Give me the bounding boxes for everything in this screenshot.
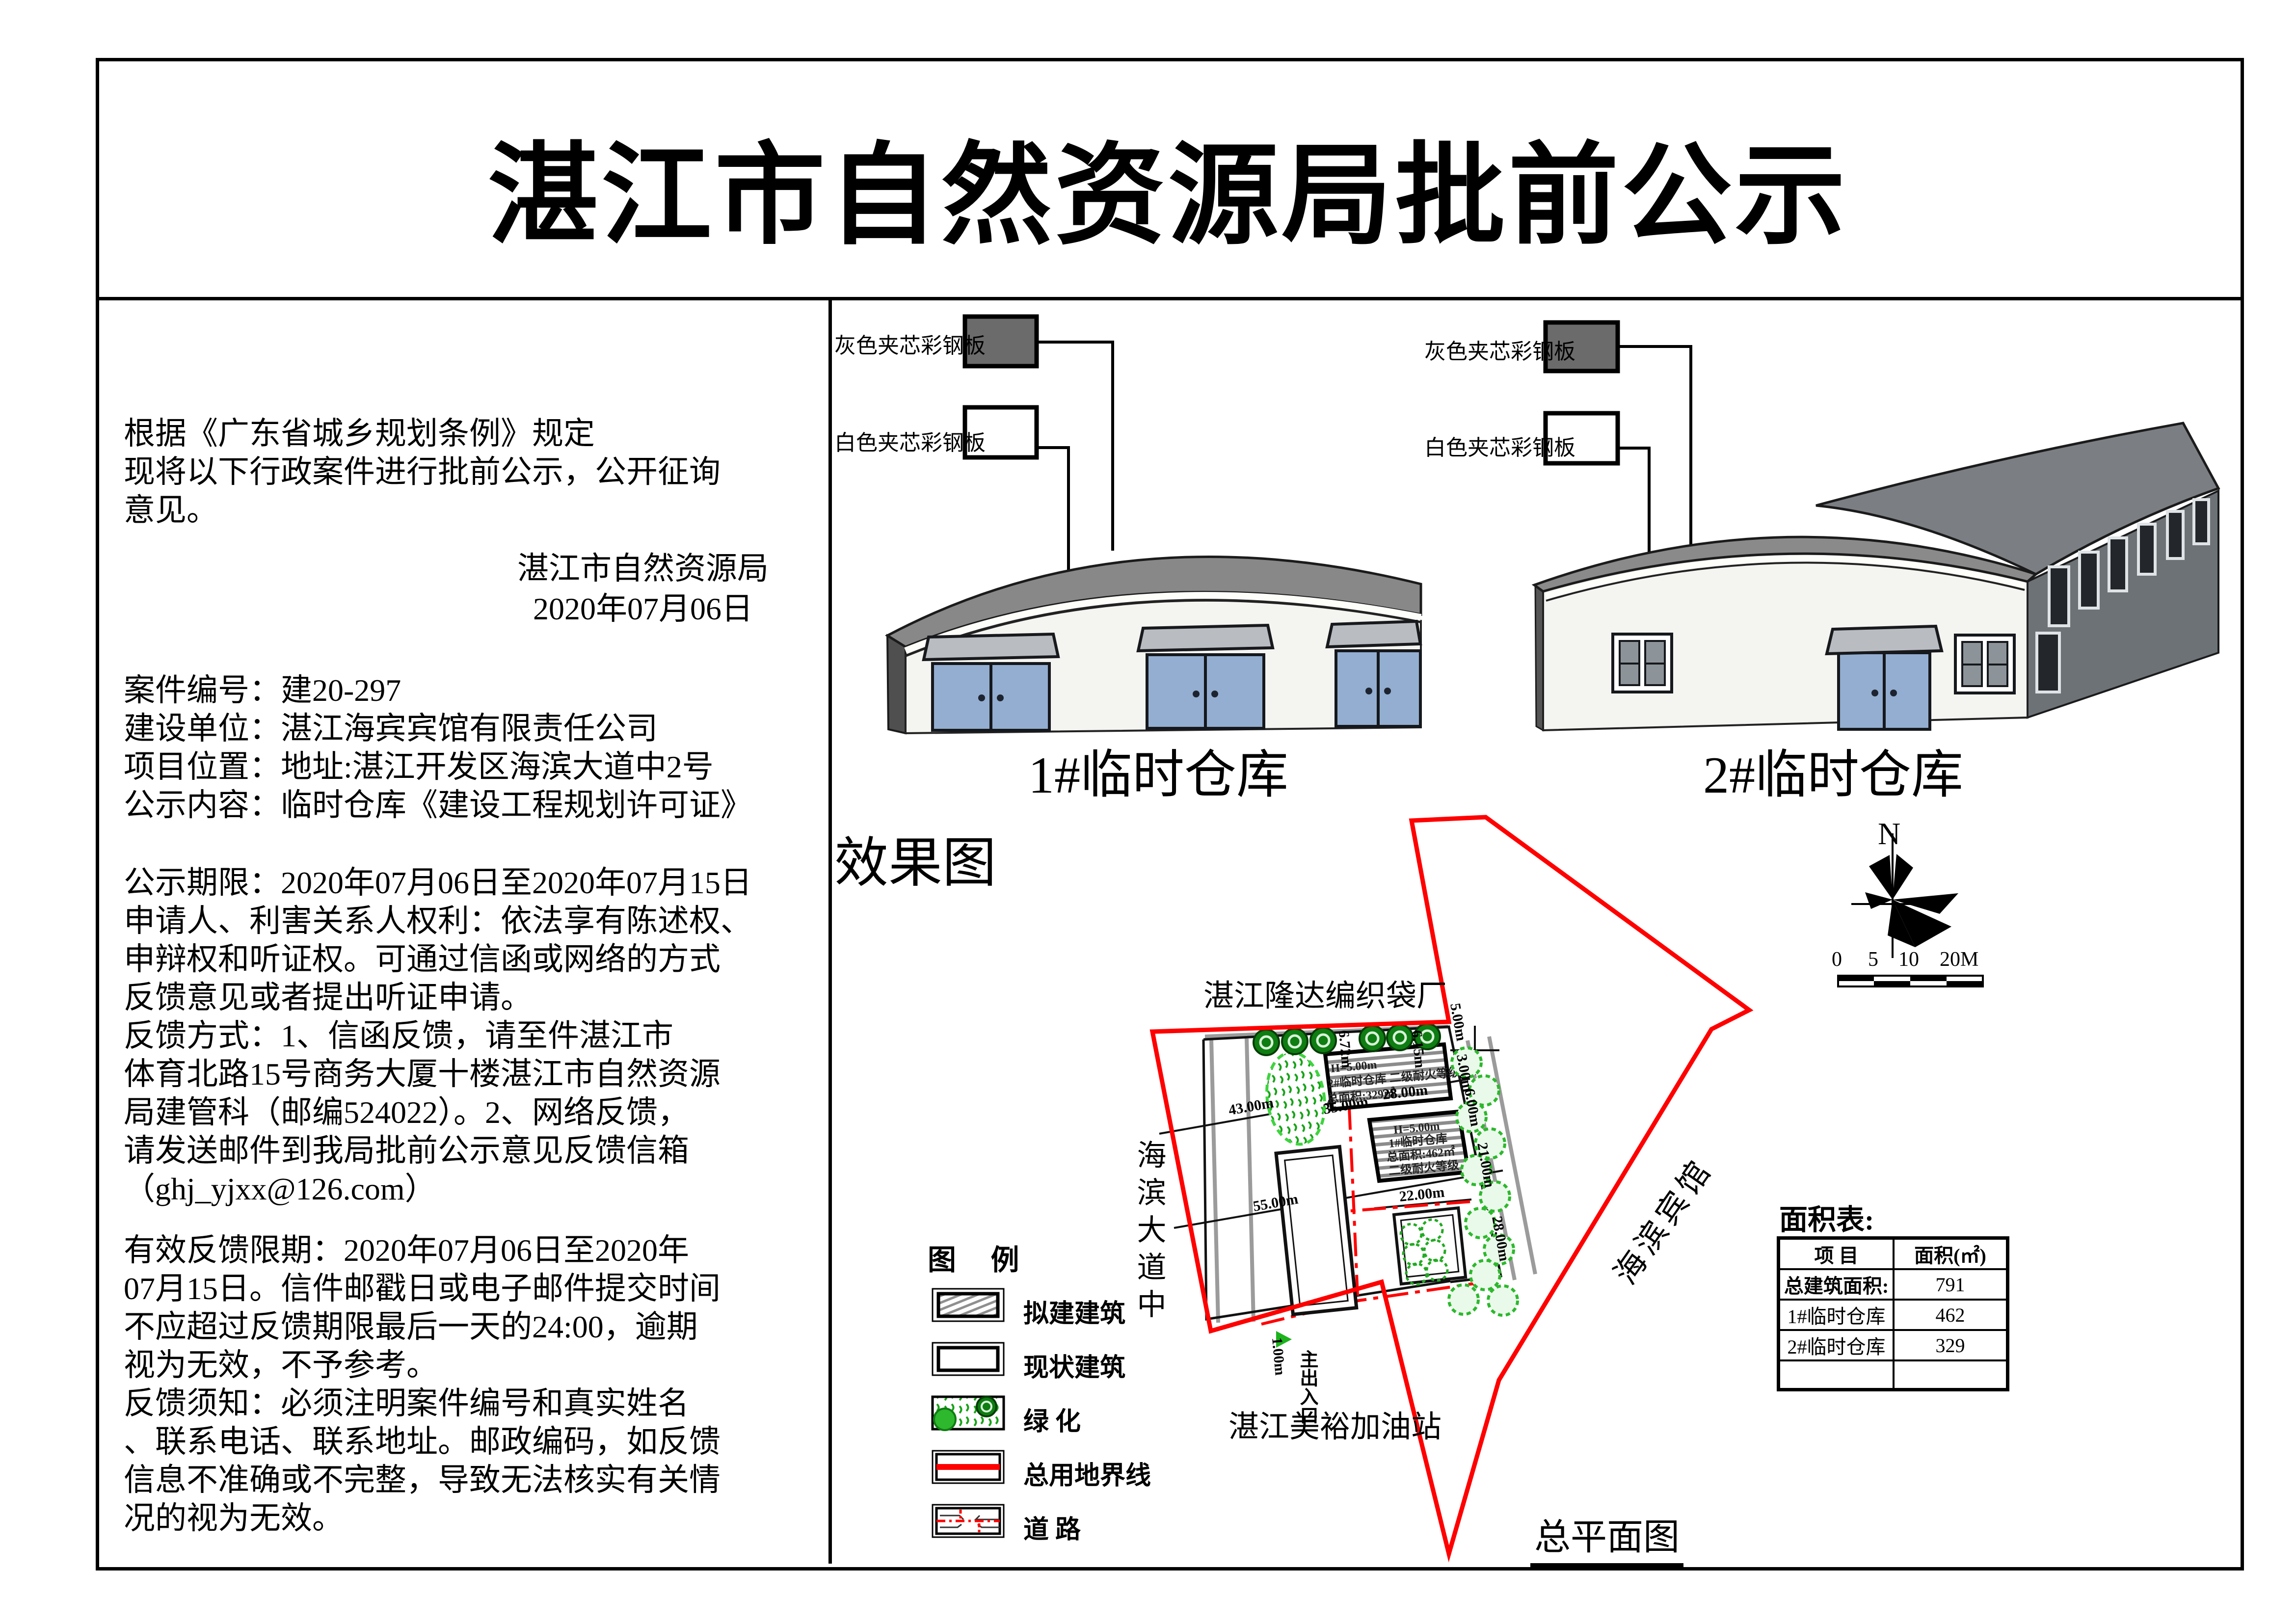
period-line: 体育北路15号商务大厦十楼湛江市自然资源 [124, 1055, 821, 1093]
valid-line: 信息不准确或不完整，导致无法核实有关情 [124, 1462, 821, 1500]
scale-bar: 0 5 10 20M [1832, 948, 1983, 986]
dim-1: 1.00m [1269, 1337, 1288, 1376]
empty-cell [1779, 1360, 1894, 1390]
period-line: （ghj_yjxx@126.com） [124, 1170, 821, 1208]
main-entrance-label: 主出入口 [1294, 1350, 1321, 1443]
notice-page: 湛江市自然资源局批前公示 根据《广东省城乡规划条例》规定 现将以下行政案件进行批… [0, 0, 2296, 1624]
notice-content: 公示内容：临时仓库《建设工程规划许可证》 [124, 786, 821, 825]
case-number: 案件编号：建20-297 [124, 671, 821, 710]
road-label: 海滨大道中 [1128, 1140, 1171, 1351]
period-line: 申辩权和听证权。可通过信函或网络的方式 [124, 940, 821, 979]
period-line: 申请人、利害关系人权利：依法享有陈述权、 [124, 902, 821, 940]
period-line: 公示期限：2020年07月06日至2020年07月15日 [124, 864, 821, 902]
validity-paragraph: 有效反馈限期：2020年07月06日至2020年 07月15日。信件邮戳日或电子… [124, 1232, 821, 1538]
tree-court [1394, 1208, 1466, 1284]
scale-0: 0 [1832, 948, 1842, 971]
warehouse-2-caption: 2#临时仓库 [1696, 732, 1971, 808]
valid-line: 反馈须知：必须注明案件编号和真实姓名 [124, 1385, 821, 1423]
valid-line: 不应超过反馈期限最后一天的24:00，逾期 [124, 1308, 821, 1347]
warehouse-1-door [1138, 625, 1273, 728]
legend-swatch-road [933, 1505, 1004, 1537]
warehouse-2-window [1613, 634, 1672, 692]
legend-item-greenery: 绿 化 [1023, 1401, 1081, 1438]
site-plan-title: 总平面图 [1530, 1508, 1683, 1569]
material-label-gray-2: 灰色夹芯彩钢板 [1424, 334, 1575, 365]
neighbor-gas-station-label: 湛江美裕加油站 [1217, 1402, 1453, 1446]
material-label-gray-1: 灰色夹芯彩钢板 [834, 328, 986, 359]
warehouse-2-rendering [1534, 423, 2218, 730]
legend-item-existing: 现状建筑 [1023, 1347, 1125, 1384]
valid-line: 、联系电话、联系地址。邮政编码，如反馈 [124, 1423, 821, 1462]
material-label-white-1: 白色夹芯彩钢板 [834, 425, 986, 456]
legend-item-proposed: 拟建建筑 [1023, 1293, 1125, 1330]
north-arrow-icon: N [1851, 816, 1958, 958]
table-row [1779, 1360, 2008, 1390]
table-row: 总建筑面积: 791 [1779, 1269, 2008, 1300]
table-row: 1#临时仓库 462 [1779, 1300, 2008, 1330]
area-table: 项 目 面积(㎡) 总建筑面积: 791 1#临时仓库 462 2#临时仓库 3… [1777, 1236, 2009, 1391]
total-area-value: 791 [1894, 1269, 2008, 1300]
area-table-title: 面积表: [1779, 1197, 1874, 1238]
intro-line: 根据《广东省城乡规划条例》规定 [124, 415, 821, 453]
rendering-heading: 效果图 [834, 819, 996, 897]
title-divider [96, 297, 2241, 300]
valid-line: 07月15日。信件邮戳日或电子邮件提交时间 [124, 1270, 821, 1308]
period-line: 局建管科（邮编524022）。2、网络反馈， [124, 1093, 821, 1132]
legend-item-boundary: 总用地界线 [1023, 1455, 1151, 1491]
scale-20: 20M [1940, 948, 1978, 971]
scale-5: 5 [1868, 948, 1878, 971]
warehouse-2-window [1955, 635, 2014, 693]
area-table-col-area: 面积(㎡) [1894, 1238, 2008, 1270]
intro-line: 意见。 [124, 491, 821, 530]
warehouse-2-area-value: 329 [1894, 1330, 2008, 1360]
area-table-header-row: 项 目 面积(㎡) [1779, 1238, 2008, 1270]
warehouse-2-area-label: 2#临时仓库 [1779, 1330, 1894, 1360]
warehouse-1-plan-block: H=5.00m 1#临时仓库 总面积:462㎡ 二级耐火等级 [1369, 1112, 1468, 1181]
warehouse-2-door [1827, 626, 1942, 729]
construction-unit: 建设单位：湛江海宾宾馆有限责任公司 [124, 710, 821, 748]
warehouse-1-rendering [887, 557, 1421, 733]
agency-signature: 湛江市自然资源局 2020年07月06日 [456, 549, 829, 629]
panel-divider [828, 297, 832, 1564]
warehouse-1-caption: 1#临时仓库 [1021, 732, 1296, 808]
existing-building-plan [1276, 1146, 1357, 1314]
table-row: 2#临时仓库 329 [1779, 1330, 2008, 1360]
warehouse-1-door [1327, 621, 1420, 726]
page-title: 湛江市自然资源局批前公示 [96, 106, 2241, 266]
scale-10: 10 [1898, 948, 1919, 971]
legend-swatch-boundary [933, 1451, 1004, 1483]
legend-swatches [933, 1289, 1004, 1537]
legend-swatch-greenery [933, 1397, 1004, 1430]
warehouse-1-door [924, 634, 1058, 730]
north-label: N [1878, 816, 1900, 851]
material-label-white-2: 白色夹芯彩钢板 [1424, 430, 1575, 461]
dim-672: 6.72m [1335, 1030, 1355, 1069]
valid-line: 况的视为无效。 [124, 1500, 821, 1538]
notice-date: 2020年07月06日 [456, 589, 829, 629]
dim-615: 6.15m [1409, 1030, 1428, 1069]
period-line: 请发送邮件到我局批前公示意见反馈信箱 [124, 1132, 821, 1170]
valid-line: 视为无效，不予参考。 [124, 1347, 821, 1385]
intro-paragraph: 根据《广东省城乡规划条例》规定 现将以下行政案件进行批前公示，公开征询 意见。 [124, 415, 821, 530]
valid-line: 有效反馈限期：2020年07月06日至2020年 [124, 1232, 821, 1270]
period-line: 反馈意见或者提出听证申请。 [124, 979, 821, 1017]
legend-swatch-proposed [933, 1289, 1004, 1321]
neighbor-factory-label: 湛江隆达编织袋厂 [1178, 971, 1472, 1015]
legend-item-road: 道 路 [1023, 1509, 1081, 1545]
intro-line: 现将以下行政案件进行批前公示，公开征询 [124, 453, 821, 491]
case-info: 案件编号：建20-297 建设单位：湛江海宾宾馆有限责任公司 项目位置：地址:湛… [124, 671, 821, 825]
warehouse-1-area-label: 1#临时仓库 [1779, 1300, 1894, 1330]
legend-swatch-existing [933, 1343, 1004, 1375]
agency-name: 湛江市自然资源局 [456, 549, 829, 589]
area-table-col-item: 项 目 [1779, 1238, 1894, 1270]
total-area-label: 总建筑面积: [1779, 1269, 1894, 1300]
legend-title: 图 例 [928, 1237, 1033, 1278]
period-paragraph: 公示期限：2020年07月06日至2020年07月15日 申请人、利害关系人权利… [124, 864, 821, 1208]
project-location: 项目位置：地址:湛江开发区海滨大道中2号 [124, 748, 821, 786]
empty-cell [1894, 1360, 2008, 1390]
period-line: 反馈方式：1、信函反馈，请至件湛江市 [124, 1017, 821, 1055]
warehouse-1-area-value: 462 [1894, 1300, 2008, 1330]
